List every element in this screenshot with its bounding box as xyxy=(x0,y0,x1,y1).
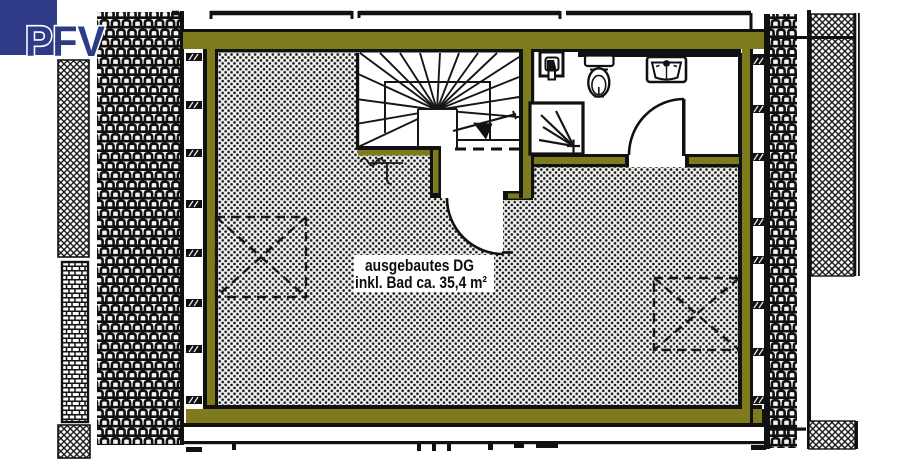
svg-text:inkl. Bad ca. 35,4 m²: inkl. Bad ca. 35,4 m² xyxy=(355,273,487,292)
svg-text:PFV: PFV xyxy=(25,18,105,66)
